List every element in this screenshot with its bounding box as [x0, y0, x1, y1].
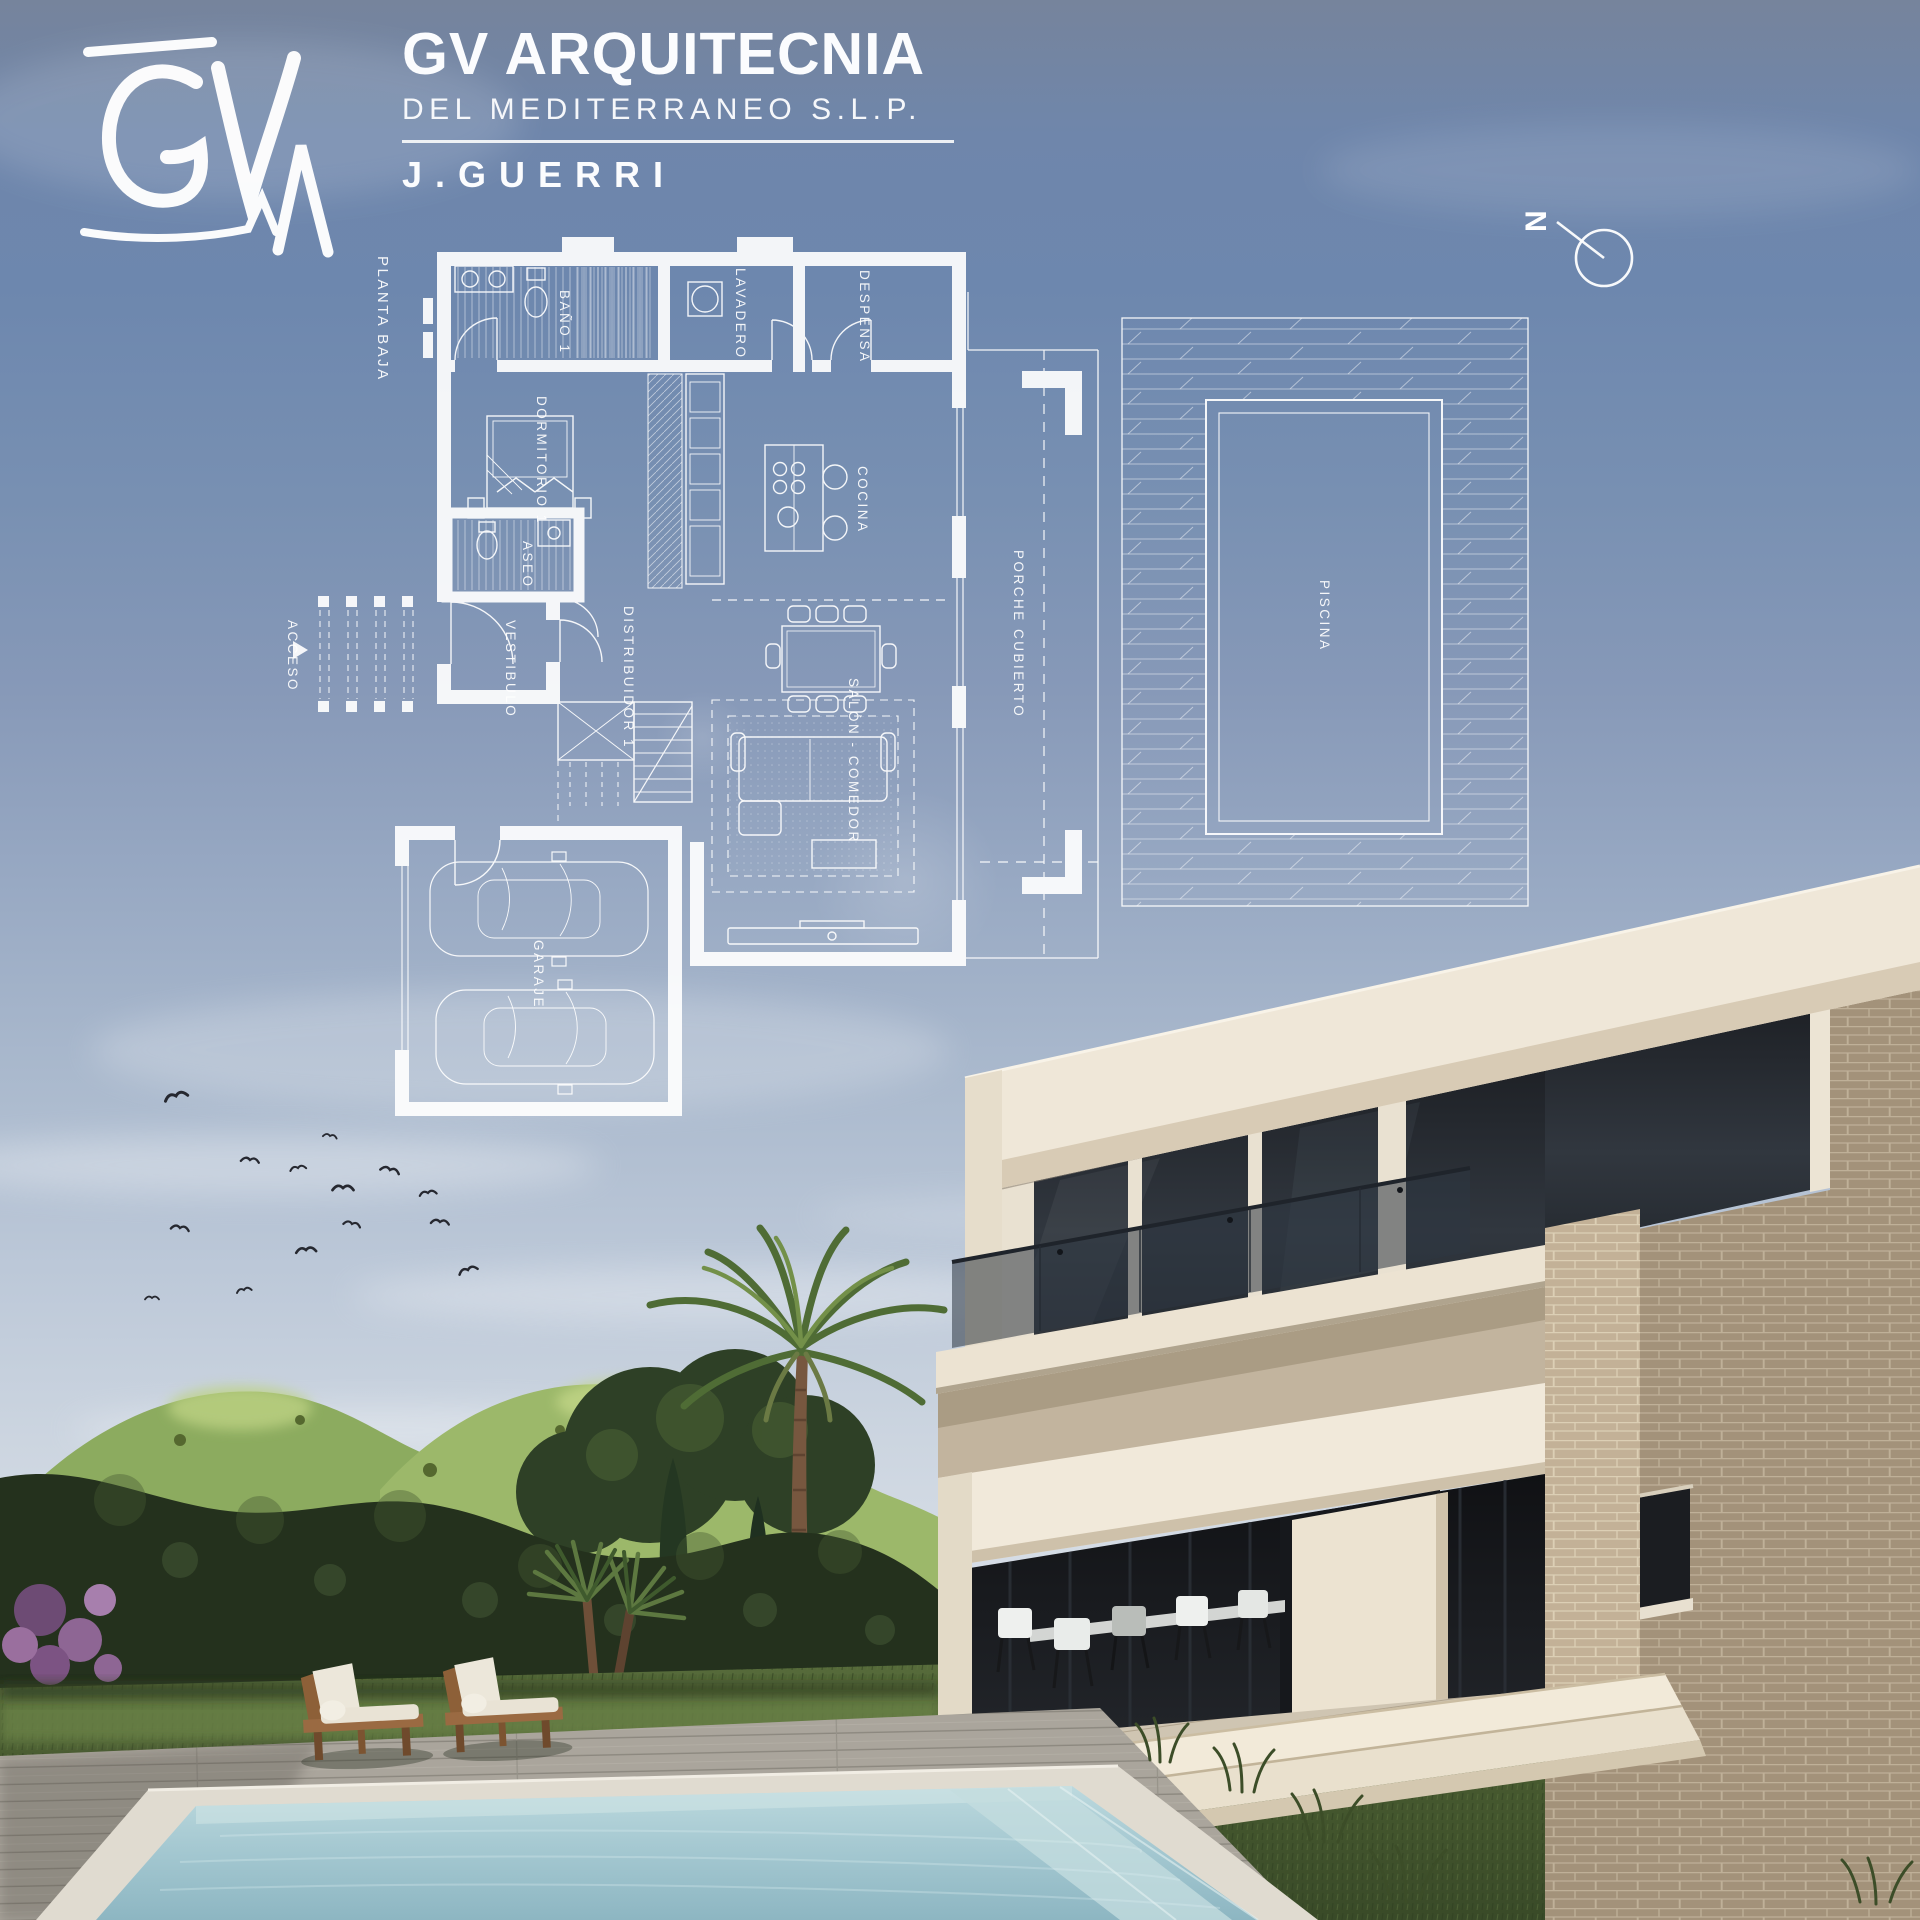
rug-dot-fill — [728, 716, 898, 876]
room-label-piscina: PISCINA — [1317, 580, 1332, 652]
room-label-salon-comedor: SALÓN - COMEDOR — [846, 678, 861, 844]
room-label-despensa: DESPENSA — [857, 270, 872, 364]
north-arrow: N — [1520, 210, 1632, 286]
acceso-markers — [293, 596, 413, 712]
plan-walls — [395, 237, 1082, 1116]
architect-name: J.GUERRI — [402, 154, 954, 196]
north-label: N — [1520, 210, 1553, 232]
plan-title: PLANTA BAJA — [374, 256, 391, 382]
brand-logo — [84, 42, 328, 252]
room-label-porche-cubierto: PORCHE CUBIERTO — [1011, 550, 1026, 718]
room-label-lavadero: LAVADERO — [733, 268, 748, 360]
architectural-poster: N — [0, 0, 1920, 1920]
brand-header: GV ARQUITECNIA DEL MEDITERRANEO S.L.P. J… — [402, 24, 954, 196]
room-label-garaje: GARAJE — [531, 940, 546, 1009]
room-label-acceso: ACCESO — [285, 620, 300, 692]
room-label-dormitorio1: DORMITORIO 1 — [534, 396, 549, 525]
room-label-aseo: ASEO — [520, 541, 535, 589]
room-label-vestibulo: VESTIBULO — [503, 620, 518, 718]
room-label-distribuidor1: DISTRIBUIDOR 1 — [621, 606, 636, 749]
aseo-floor-hatch — [455, 520, 573, 590]
company-subtitle: DEL MEDITERRANEO S.L.P. — [402, 93, 954, 127]
shower-hatch — [577, 267, 653, 358]
divider-rule — [402, 140, 954, 143]
room-label-bano1: BAÑO 1 — [557, 290, 572, 355]
floor-plan: N — [0, 0, 1920, 1920]
company-name: GV ARQUITECNIA — [402, 24, 954, 86]
wardrobe-hatch — [648, 374, 682, 588]
room-label-cocina: COCINA — [855, 466, 870, 534]
